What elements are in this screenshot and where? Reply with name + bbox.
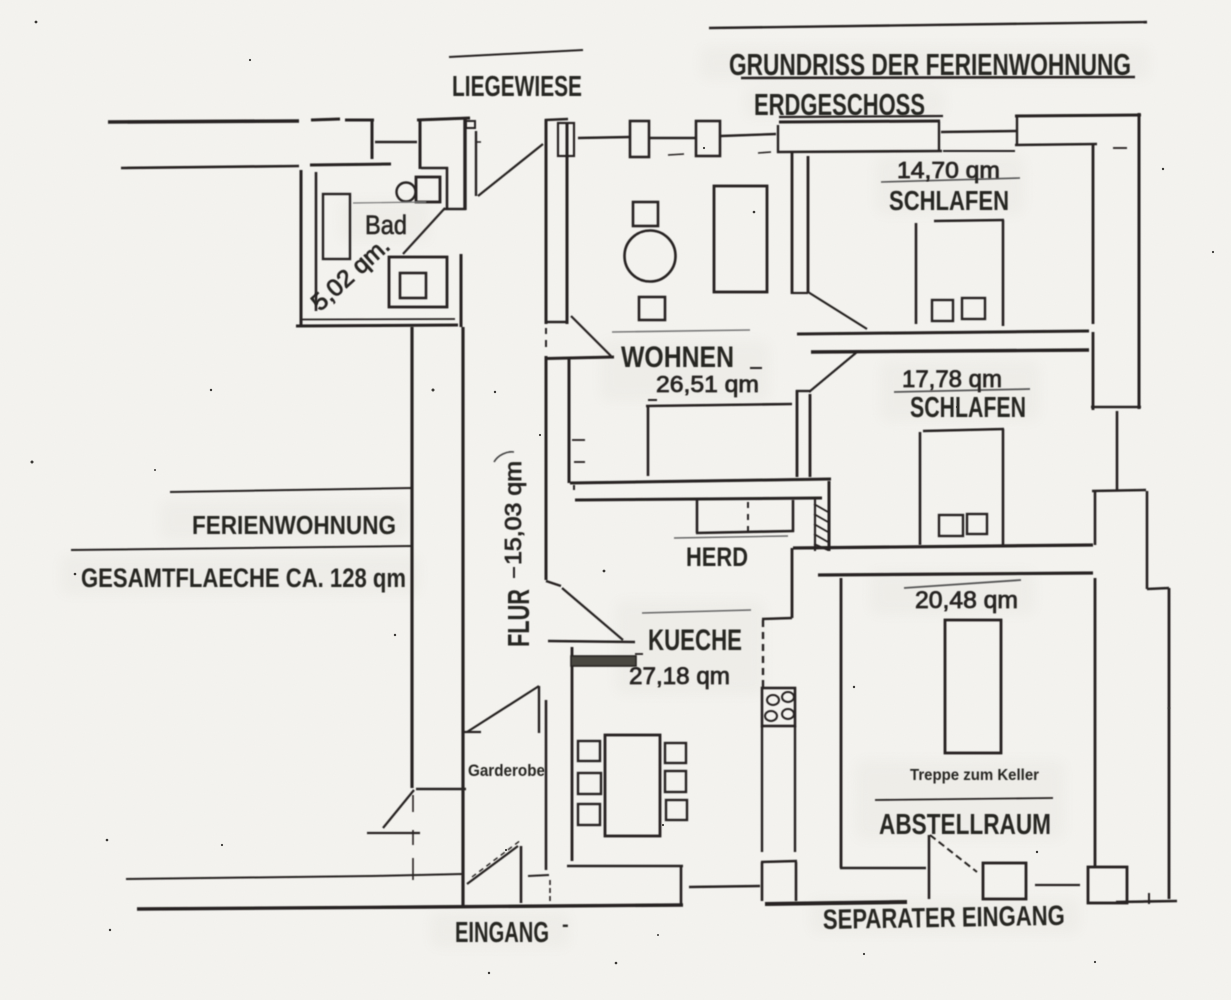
svg-text:FLUR: FLUR — [501, 589, 536, 647]
svg-text:Treppe zum Keller: Treppe zum Keller — [910, 767, 1039, 784]
svg-text:SCHLAFEN: SCHLAFEN — [910, 392, 1026, 424]
svg-text:EINGANG: EINGANG — [455, 917, 549, 949]
svg-text:WOHNEN: WOHNEN — [621, 341, 734, 374]
svg-text:GRUNDRISS DER FERIENWOHNUNG: GRUNDRISS DER FERIENWOHNUNG — [729, 47, 1131, 82]
svg-text:LIEGEWIESE: LIEGEWIESE — [452, 71, 582, 103]
svg-text:KUECHE: KUECHE — [648, 624, 742, 657]
svg-text:27,18 qm: 27,18 qm — [629, 663, 730, 690]
svg-text:GESAMTFLAECHE CA. 128 qm: GESAMTFLAECHE CA. 128 qm — [81, 563, 406, 593]
svg-text:ABSTELLRAUM: ABSTELLRAUM — [879, 809, 1051, 841]
svg-text:14,70 qm: 14,70 qm — [897, 157, 1000, 183]
svg-text:15,03 qm: 15,03 qm — [500, 461, 526, 565]
svg-text:Garderobe: Garderobe — [468, 761, 545, 780]
svg-text:SCHLAFEN: SCHLAFEN — [889, 185, 1009, 216]
svg-text:Bad: Bad — [365, 210, 407, 240]
svg-text:HERD: HERD — [686, 542, 748, 572]
svg-text:26,51 qm: 26,51 qm — [656, 371, 759, 397]
svg-text:20,48 qm: 20,48 qm — [915, 587, 1018, 614]
svg-text:-: - — [562, 914, 569, 936]
svg-text:SEPARATER EINGANG: SEPARATER EINGANG — [823, 900, 1066, 935]
svg-text:FERIENWOHNUNG: FERIENWOHNUNG — [192, 510, 396, 540]
svg-text:17,78 qm: 17,78 qm — [902, 366, 1002, 393]
svg-text:ERDGESCHOSS: ERDGESCHOSS — [754, 87, 925, 122]
